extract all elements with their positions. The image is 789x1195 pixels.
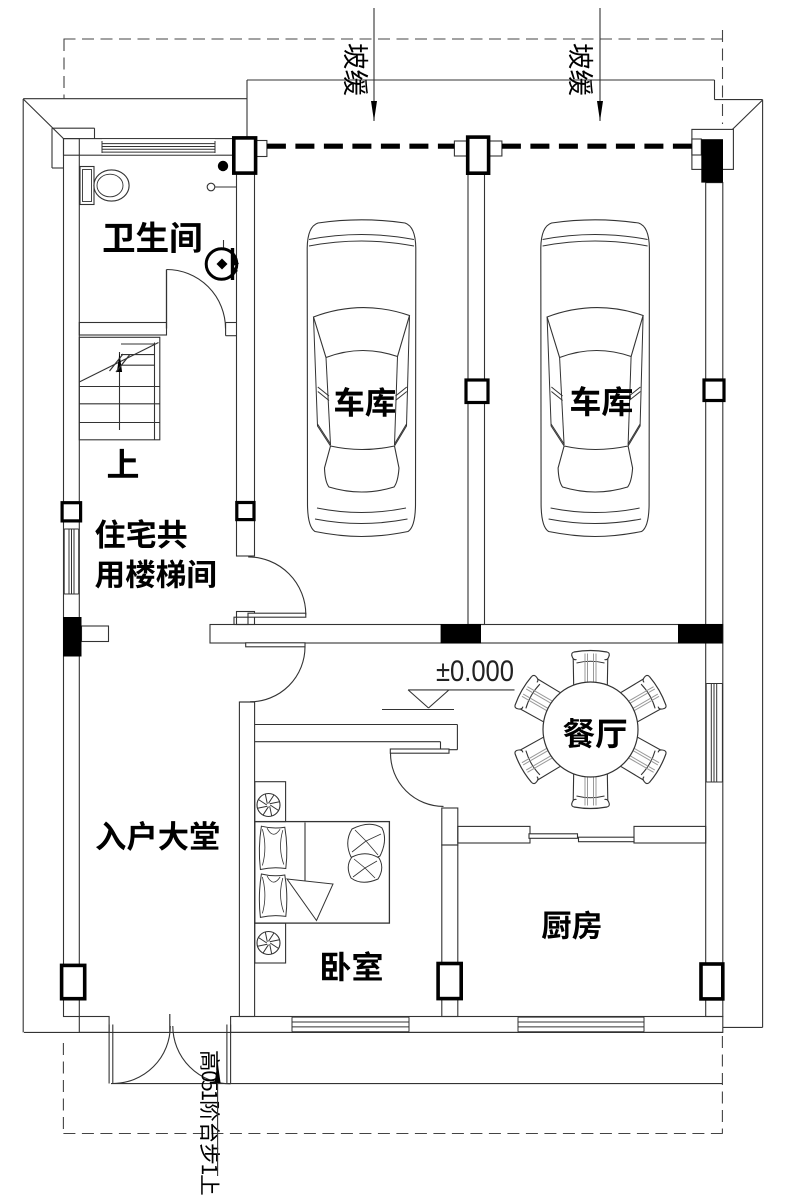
svg-text:±0.000: ±0.000 (436, 655, 514, 688)
